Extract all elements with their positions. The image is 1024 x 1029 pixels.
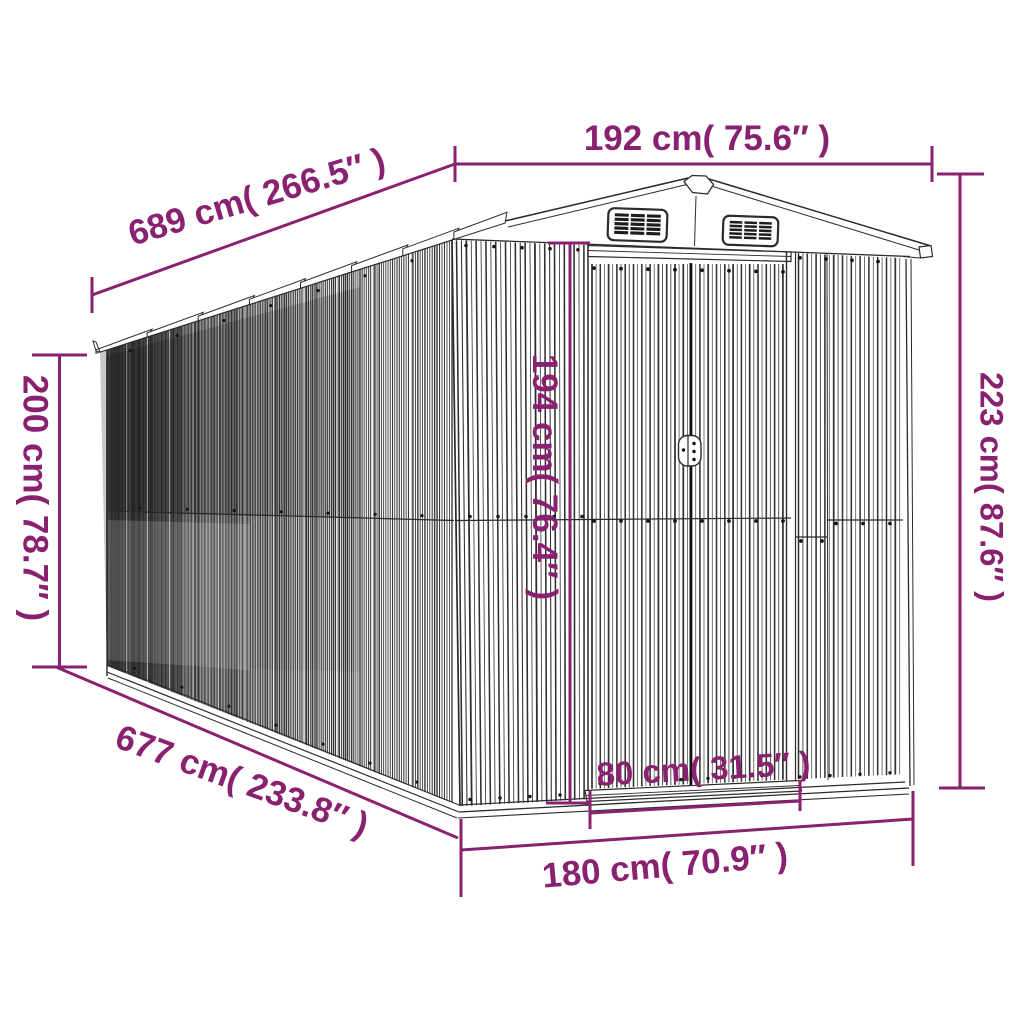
svg-text:192 cm( 75.6″ ): 192 cm( 75.6″ ) — [584, 119, 830, 158]
svg-text:200 cm( 78.7″ ): 200 cm( 78.7″ ) — [15, 375, 54, 621]
svg-text:194 cm( 76.4″ ): 194 cm( 76.4″ ) — [525, 354, 564, 600]
svg-text:223 cm( 87.6″ ): 223 cm( 87.6″ ) — [974, 372, 1011, 602]
